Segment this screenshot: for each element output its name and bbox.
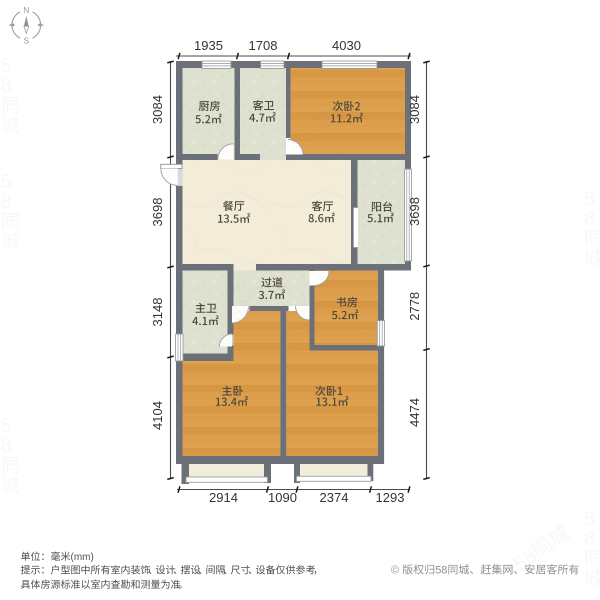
svg-text:8: 8 (584, 529, 595, 550)
svg-text:4030: 4030 (332, 38, 361, 53)
svg-text:2374: 2374 (320, 490, 349, 505)
svg-text:5: 5 (584, 509, 595, 530)
svg-text:5: 5 (1, 416, 12, 437)
svg-text:8: 8 (584, 209, 595, 230)
svg-text:1935: 1935 (194, 38, 223, 53)
svg-text:5: 5 (584, 189, 595, 210)
svg-text:3148: 3148 (150, 298, 165, 327)
svg-text:8: 8 (1, 436, 12, 457)
svg-text:1708: 1708 (249, 38, 278, 53)
svg-text:3698: 3698 (150, 198, 165, 227)
svg-text:S: S (23, 36, 29, 46)
svg-text:3698: 3698 (407, 197, 422, 226)
svg-text:(mm): (mm) (71, 552, 94, 563)
svg-text:1090: 1090 (268, 490, 297, 505)
svg-text:4104: 4104 (150, 401, 165, 430)
svg-text:8: 8 (1, 76, 12, 97)
svg-text:©: © (391, 565, 399, 577)
svg-text:1293: 1293 (376, 490, 405, 505)
svg-text:N: N (23, 5, 29, 15)
svg-text:4474: 4474 (407, 398, 422, 427)
svg-text:2778: 2778 (407, 292, 422, 321)
svg-text:2914: 2914 (209, 490, 238, 505)
svg-text:58: 58 (435, 565, 447, 577)
svg-text:8: 8 (1, 192, 12, 213)
svg-text:3084: 3084 (407, 95, 422, 124)
svg-text:3084: 3084 (150, 95, 165, 124)
svg-text:5: 5 (1, 172, 12, 193)
svg-text:5: 5 (1, 56, 12, 77)
